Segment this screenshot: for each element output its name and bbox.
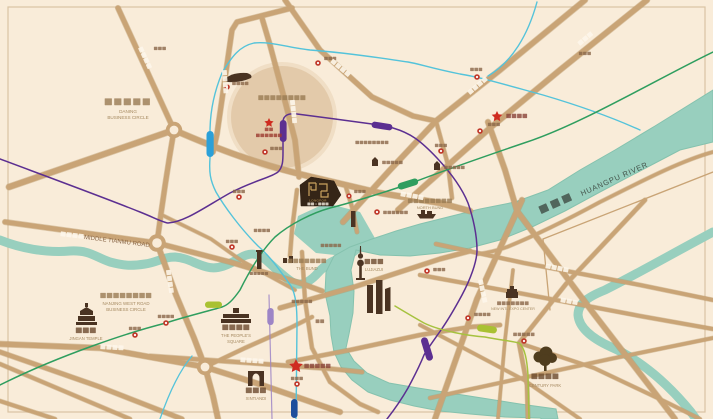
svg-text:NORTH BUND: NORTH BUND — [417, 205, 444, 210]
svg-text:NEW INTL EXPO CENTER: NEW INTL EXPO CENTER — [491, 307, 535, 311]
svg-text:CENTURY PARK: CENTURY PARK — [529, 383, 562, 388]
svg-text:XINTIANDI: XINTIANDI — [246, 396, 267, 401]
svg-text:LUJIAZUI: LUJIAZUI — [365, 267, 383, 272]
svg-text:DANING: DANING — [119, 109, 137, 114]
svg-text:THE BUND: THE BUND — [296, 266, 317, 271]
svg-text:NANJING WEST ROAD: NANJING WEST ROAD — [103, 301, 150, 306]
svg-text:JINGAN TEMPLE: JINGAN TEMPLE — [69, 336, 102, 341]
svg-text:SQUARE: SQUARE — [227, 339, 245, 344]
svg-text:BUSINESS CIRCLE: BUSINESS CIRCLE — [106, 307, 146, 312]
svg-text:LONGFOR: LONGFOR — [309, 199, 327, 203]
svg-text:BUSINESS CIRCLE: BUSINESS CIRCLE — [107, 115, 148, 120]
svg-text:THE PEOPLE'S: THE PEOPLE'S — [221, 333, 251, 338]
